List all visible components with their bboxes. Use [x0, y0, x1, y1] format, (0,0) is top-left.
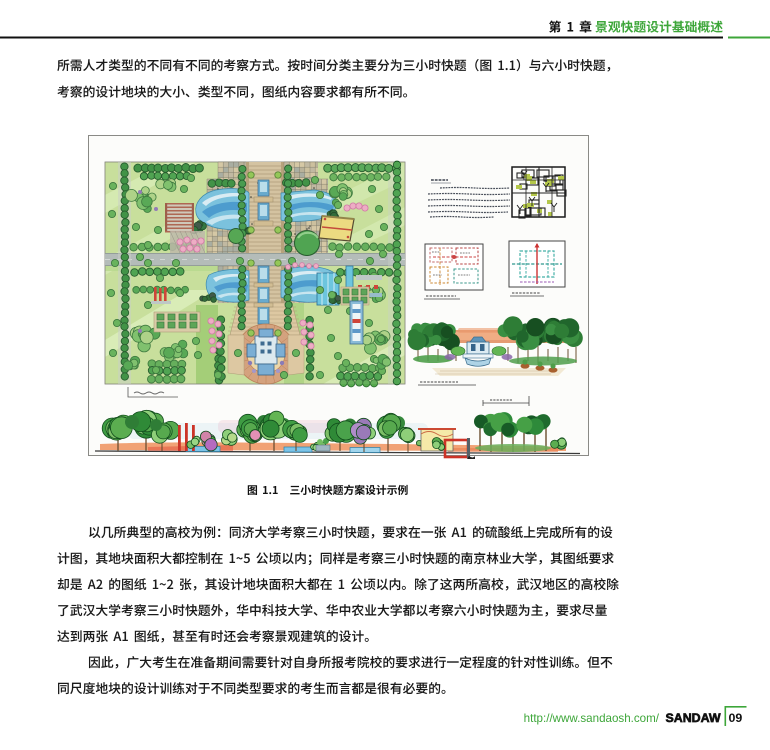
- svg-text:http://www.sandaosh.com/: http://www.sandaosh.com/: [524, 712, 660, 725]
- svg-text:09: 09: [729, 711, 743, 725]
- svg-text:SANDAW: SANDAW: [666, 711, 721, 725]
